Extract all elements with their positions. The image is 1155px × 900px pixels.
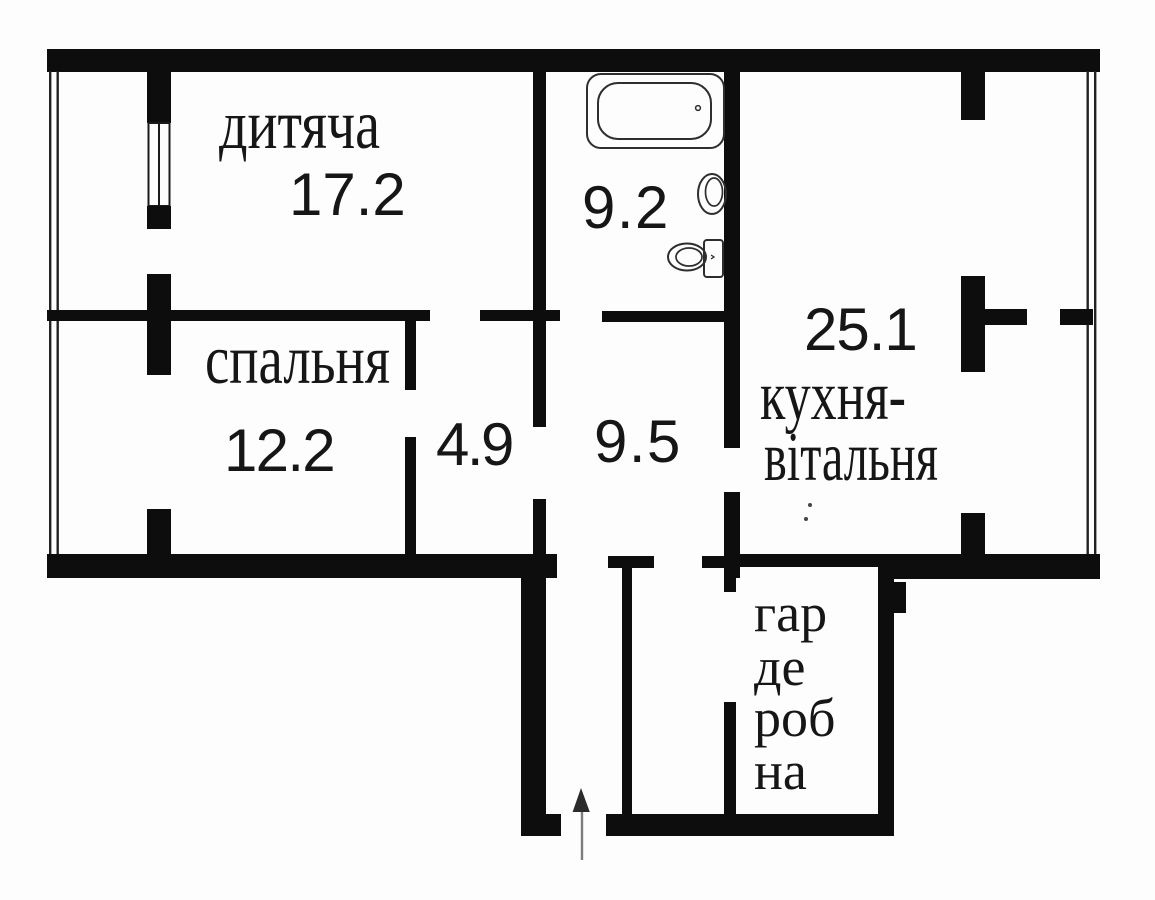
svg-text:4.9: 4.9 [436,411,512,478]
svg-text:гар: гар [754,583,827,643]
svg-text:25.1: 25.1 [804,296,917,363]
svg-text:12.2: 12.2 [224,417,334,484]
svg-text:роб: роб [754,688,835,748]
svg-text:на: на [754,741,807,801]
svg-text:17.2: 17.2 [289,161,406,228]
svg-text:дитяча: дитяча [219,87,380,164]
svg-text:9.2: 9.2 [582,174,670,241]
svg-text:вітальня: вітальня [764,419,938,496]
svg-text:9.5: 9.5 [594,408,682,475]
svg-text:спальня: спальня [205,322,390,399]
